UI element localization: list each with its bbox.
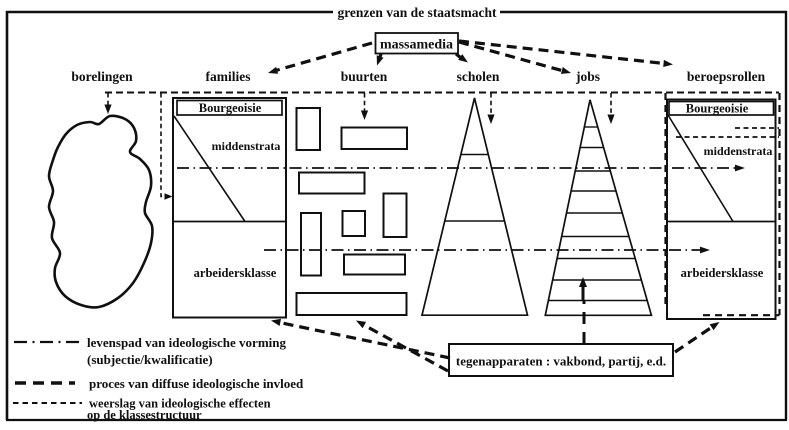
svg-text:op de klassestructuur: op de klassestructuur [87,408,202,422]
svg-text:borelingen: borelingen [71,69,133,84]
svg-text:proces van diffuse ideologisch: proces van diffuse ideologische invloed [89,376,304,391]
svg-text:tegenapparaten : vakbond, part: tegenapparaten : vakbond, partij, e.d. [456,354,666,369]
svg-text:(subjectie/kwalificatie): (subjectie/kwalificatie) [87,352,213,367]
svg-text:buurten: buurten [341,69,388,84]
svg-text:beroepsrollen: beroepsrollen [687,69,766,84]
svg-text:arbeidersklasse: arbeidersklasse [681,266,764,280]
svg-text:Bourgeoisie: Bourgeoisie [686,102,749,116]
svg-text:arbeidersklasse: arbeidersklasse [194,266,277,280]
svg-text:levenspad van ideologische vor: levenspad van ideologische vorming [87,335,286,350]
svg-text:grenzen van de staatsmacht: grenzen van de staatsmacht [337,5,497,20]
svg-text:Bourgeoisie: Bourgeoisie [199,101,262,115]
svg-text:families: families [206,69,251,84]
svg-text:scholen: scholen [457,69,500,84]
svg-text:massamedia: massamedia [380,38,453,53]
svg-text:middenstrata: middenstrata [212,139,281,153]
svg-text:middenstrata: middenstrata [704,144,773,158]
svg-text:jobs: jobs [575,69,600,84]
